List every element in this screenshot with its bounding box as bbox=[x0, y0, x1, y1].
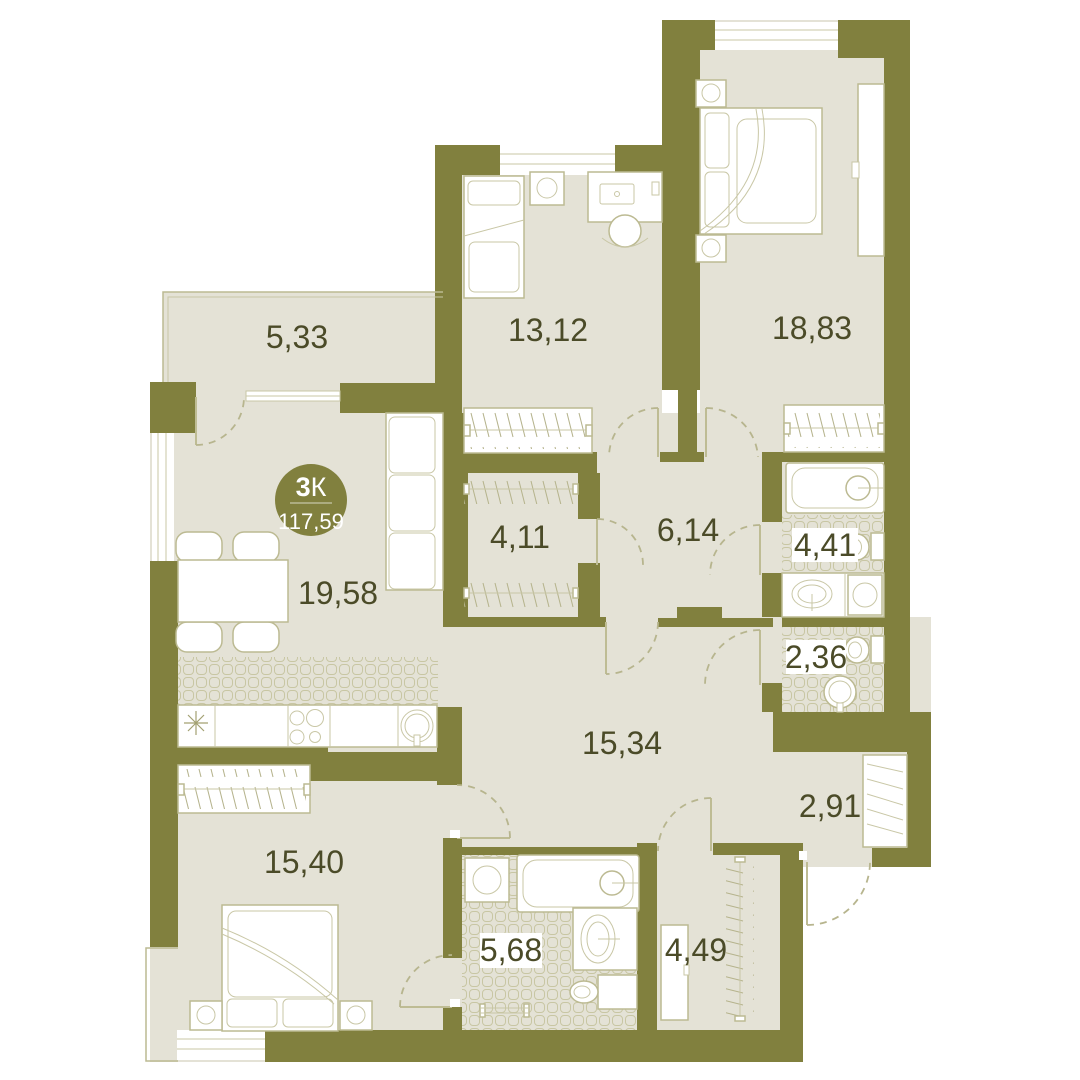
double-bed-icon bbox=[700, 108, 822, 234]
nightstand-icon bbox=[696, 235, 726, 262]
area-label-entry-corridor: 2,91 bbox=[799, 788, 861, 824]
area-label-bathroom-main: 4,41 bbox=[794, 527, 856, 563]
window-living bbox=[152, 433, 174, 561]
area-label-bedroom-main: 18,83 bbox=[772, 310, 852, 346]
washing-machine-icon bbox=[465, 858, 509, 902]
chair-icon bbox=[176, 532, 222, 562]
sofa-icon bbox=[386, 413, 443, 590]
area-label-wc: 2,36 bbox=[785, 639, 847, 675]
badge-total-area: 117,59 bbox=[278, 509, 344, 534]
window-bedroom-main bbox=[715, 22, 838, 50]
area-label-loggia: 5,33 bbox=[266, 319, 328, 355]
area-label-closet-entry: 4,49 bbox=[665, 932, 727, 968]
area-label-kitchen-living: 19,58 bbox=[298, 575, 378, 611]
badge-type-label: 3К bbox=[296, 472, 327, 502]
area-label-walkin-closet: 4,11 bbox=[490, 519, 550, 555]
nightstand-icon bbox=[530, 172, 564, 205]
area-label-children-room: 13,12 bbox=[508, 312, 588, 348]
sink-icon bbox=[573, 908, 637, 970]
area-label-bedroom-second: 15,40 bbox=[264, 844, 344, 880]
single-bed-icon bbox=[464, 176, 524, 298]
clothes-rail-icon bbox=[464, 474, 578, 504]
window-loggia-sidelight bbox=[246, 391, 340, 401]
clothes-rail-icon bbox=[464, 408, 592, 453]
dining-table-icon bbox=[178, 560, 288, 622]
clothes-rail-icon bbox=[726, 857, 754, 1021]
bathtub-icon bbox=[786, 463, 884, 513]
clothes-rail-icon bbox=[464, 578, 578, 608]
floor-plan: 5,33 13,12 18,83 4,11 6,14 4,41 2,36 19,… bbox=[0, 0, 1080, 1080]
nightstand-icon bbox=[696, 80, 726, 107]
floor-plan-page: 5,33 13,12 18,83 4,11 6,14 4,41 2,36 19,… bbox=[0, 0, 1080, 1080]
chair-icon bbox=[176, 622, 222, 652]
washing-machine-icon bbox=[848, 575, 882, 615]
coat-rack-icon bbox=[863, 755, 907, 847]
kitchen-counter-icon bbox=[178, 705, 437, 747]
clothes-rail-icon bbox=[178, 765, 310, 813]
chair-icon bbox=[233, 532, 279, 562]
nightstand-icon bbox=[340, 1001, 372, 1030]
clothes-rail-icon bbox=[784, 405, 884, 452]
area-label-hallway: 15,34 bbox=[582, 725, 662, 761]
area-label-inner-hall: 6,14 bbox=[657, 512, 719, 548]
nightstand-icon bbox=[190, 1001, 222, 1030]
chair-icon bbox=[233, 622, 279, 652]
area-label-bathroom-ensuite: 5,68 bbox=[480, 932, 542, 968]
window-bedroom-second bbox=[177, 1030, 265, 1060]
double-bed-icon bbox=[222, 905, 338, 1031]
bathtub-icon bbox=[517, 855, 639, 912]
window-children-room bbox=[500, 146, 615, 175]
apartment-type-badge: 3К 117,59 bbox=[275, 464, 347, 536]
toilet-icon bbox=[845, 636, 884, 663]
